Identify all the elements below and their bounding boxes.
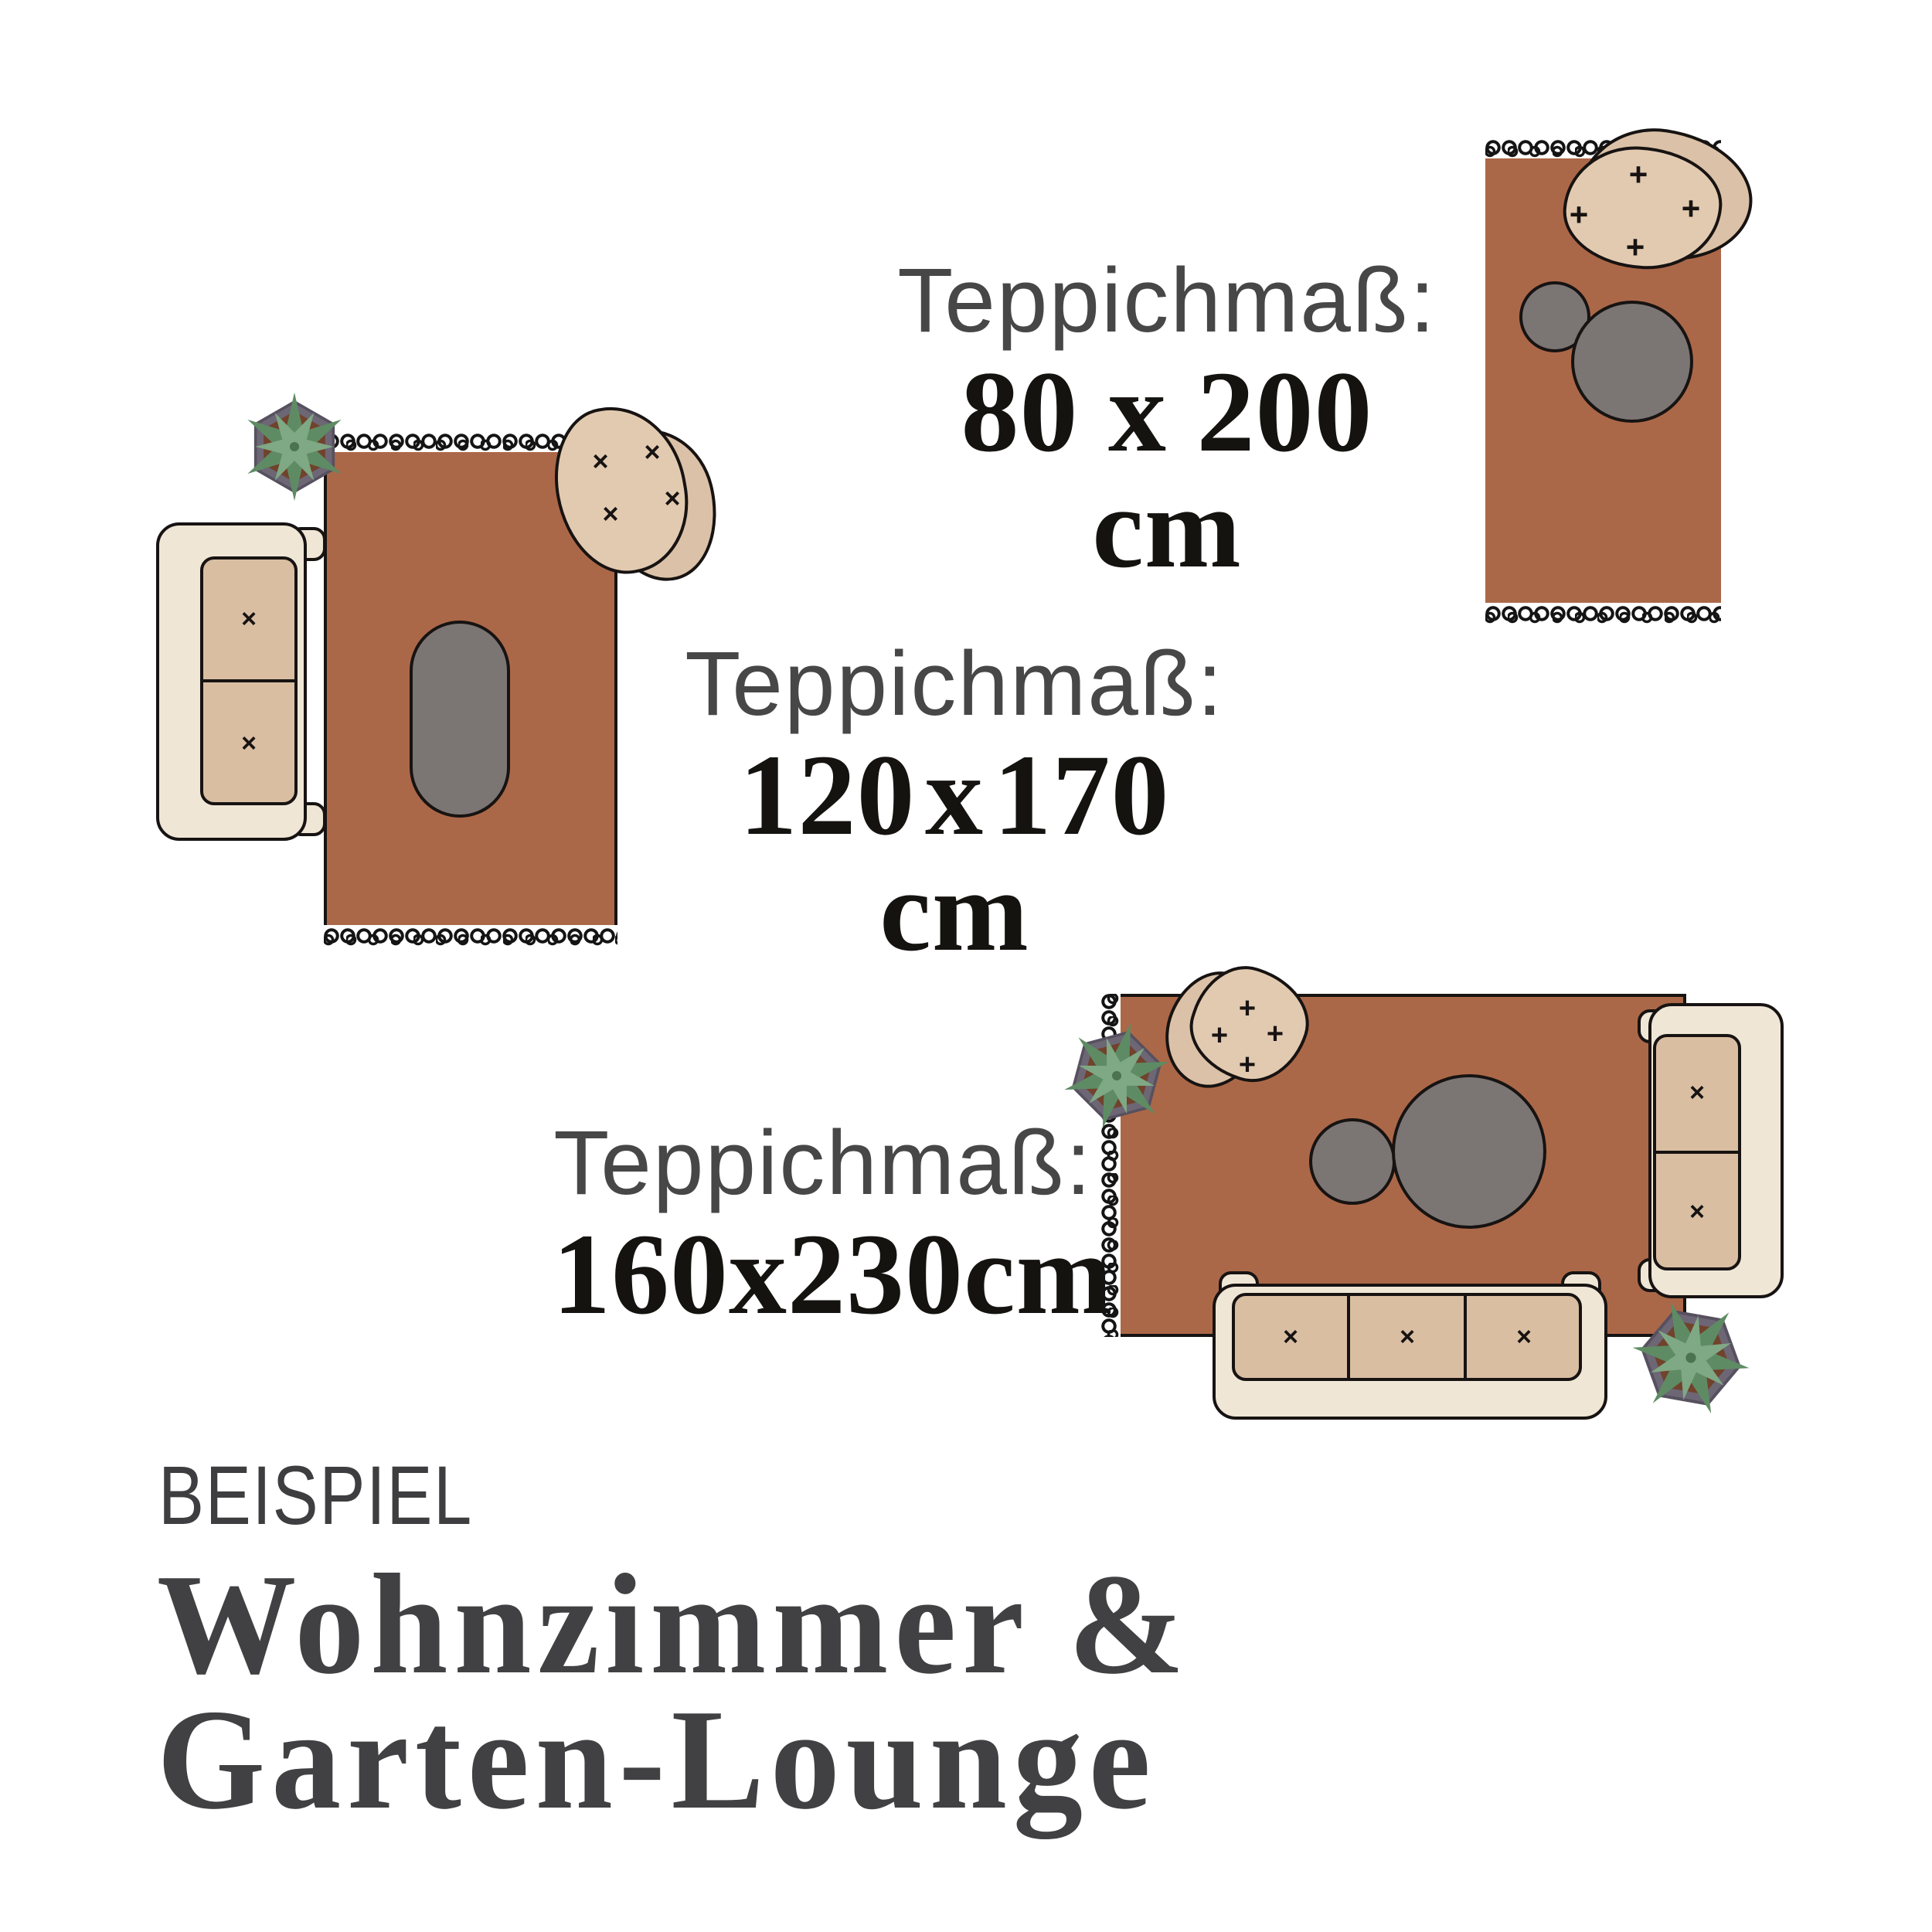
seat-mark: + — [1239, 1050, 1256, 1080]
cushion-mark: × — [1689, 1199, 1705, 1225]
footer-title-line2: Garten-Lounge — [157, 1692, 1191, 1828]
cushion-mark: × — [241, 730, 257, 757]
seat-mark: + — [1629, 158, 1648, 191]
footer-title-line1: Wohnzimmer & — [157, 1557, 1191, 1692]
cushion-mark: × — [1516, 1324, 1532, 1350]
seat-mark: + — [1267, 1019, 1284, 1049]
footer-title: Wohnzimmer & Garten-Lounge — [157, 1557, 1191, 1828]
seat-mark: + — [1239, 994, 1256, 1023]
potted-plant-icon — [236, 389, 352, 505]
rug-fringe-bottom — [324, 924, 617, 947]
size-label-value: 120 x 170 cm — [684, 737, 1225, 969]
cushion-mark: × — [1689, 1080, 1705, 1106]
size-label-intro: Teppichmaß: — [684, 638, 1225, 730]
seat-mark: + — [1211, 1021, 1228, 1050]
armchair-icon: + + + + — [1557, 130, 1750, 273]
seat-mark: + — [1626, 231, 1645, 264]
size-label-value: 160x230cm — [553, 1216, 1094, 1332]
size-label-intro: Teppichmaß: — [896, 255, 1437, 346]
seat-mark: × — [592, 447, 608, 475]
seat-mark: × — [664, 485, 680, 512]
seat-mark: × — [602, 500, 618, 528]
coffee-table-oval-icon — [410, 621, 510, 818]
seat-mark: + — [1570, 199, 1589, 231]
coffee-table-round-icon — [1571, 301, 1693, 423]
size-label-120x170: Teppichmaß: 120 x 170 cm — [684, 638, 1225, 969]
cushion-mark: × — [1400, 1324, 1415, 1350]
size-label-value: 80 x 200 cm — [896, 354, 1437, 586]
size-label-intro: Teppichmaß: — [553, 1117, 1094, 1209]
cushion-mark: × — [241, 606, 257, 632]
seat-mark: + — [1682, 192, 1701, 225]
footer-eyebrow: BEISPIEL — [158, 1447, 473, 1543]
armchair-icon: + + + + — [1167, 962, 1318, 1101]
sofa-two-seat-icon: × × — [156, 522, 307, 841]
sofa-three-seat-icon: × × × — [1213, 1284, 1607, 1420]
cushion-mark: × — [1283, 1324, 1298, 1350]
size-label-80x200: Teppichmaß: 80 x 200 cm — [896, 255, 1437, 586]
rug-size-guide-infographic: Teppichmaß: 80 x 200 cm + + + + Teppichm… — [0, 0, 1932, 1932]
sofa-two-seat-icon: × × — [1648, 1003, 1784, 1298]
size-label-160x230: Teppichmaß: 160x230cm — [553, 1117, 1094, 1332]
rug-fringe-bottom — [1485, 602, 1721, 625]
seat-mark: × — [644, 438, 660, 466]
armchair-icon: × × × × — [556, 406, 715, 599]
side-table-small-icon — [1309, 1118, 1396, 1205]
coffee-table-round-icon — [1392, 1074, 1546, 1229]
